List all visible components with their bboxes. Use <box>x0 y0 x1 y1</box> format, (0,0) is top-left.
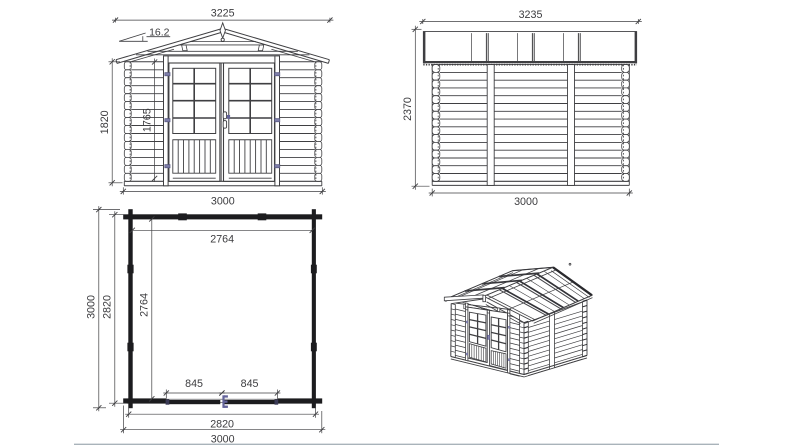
svg-text:3225: 3225 <box>211 8 235 20</box>
svg-text:3235: 3235 <box>519 9 543 21</box>
svg-text:845: 845 <box>185 378 203 390</box>
svg-text:1820: 1820 <box>99 110 111 134</box>
svg-text:3000: 3000 <box>211 195 235 207</box>
svg-text:845: 845 <box>241 378 259 390</box>
svg-text:2370: 2370 <box>402 97 414 121</box>
svg-text:3000: 3000 <box>514 196 538 208</box>
svg-text:16.2: 16.2 <box>149 27 170 39</box>
svg-text:2820: 2820 <box>102 295 114 319</box>
svg-text:2820: 2820 <box>210 419 234 431</box>
svg-text:2764: 2764 <box>139 293 151 317</box>
svg-text:1765: 1765 <box>141 108 153 132</box>
svg-text:3000: 3000 <box>86 295 98 319</box>
svg-text:2764: 2764 <box>210 234 234 246</box>
